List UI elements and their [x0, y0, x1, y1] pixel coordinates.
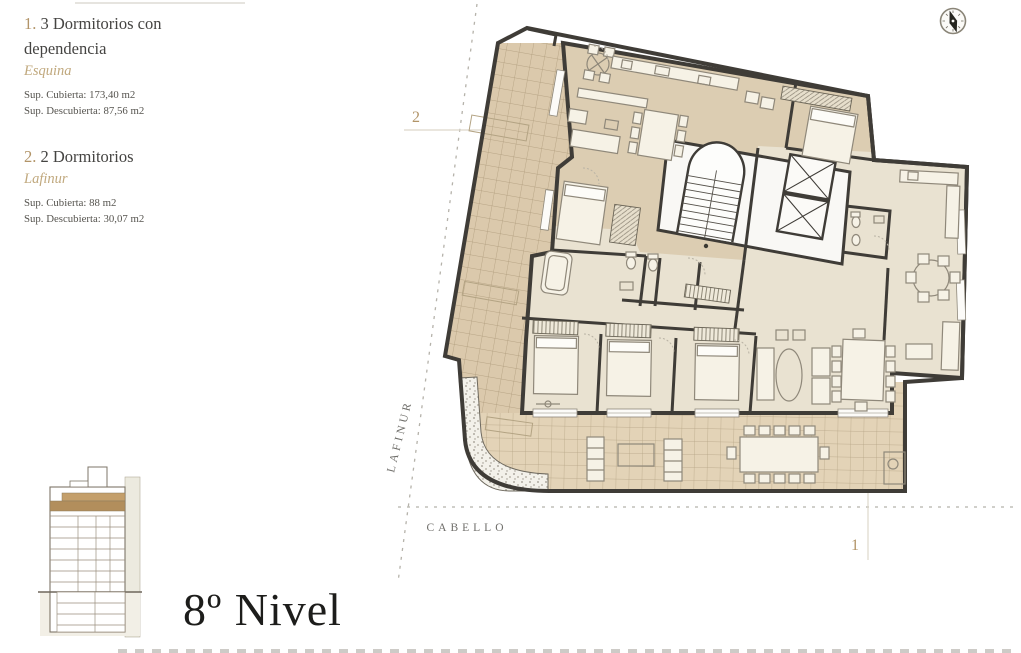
level-title: 8º Nivel	[183, 583, 342, 636]
elevation-rooftop	[88, 467, 107, 487]
bathtub	[540, 250, 573, 295]
entry-point	[704, 244, 708, 248]
bed-b	[607, 340, 652, 397]
floorplan-drawing: LAFINUR CABELLO 2 1	[0, 0, 1021, 653]
bed-a	[533, 336, 578, 395]
elevation-base	[57, 592, 125, 632]
elevation-rooftop-2	[70, 481, 88, 487]
marker-unit-1: 1	[851, 537, 859, 554]
building-plan	[445, 28, 967, 491]
toilet-b	[648, 254, 658, 271]
floorplan-page: 1. 3 Dormitorios con dependencia Esquina…	[0, 0, 1021, 653]
street-label-cabello: CABELLO	[426, 522, 507, 534]
shelves-living	[812, 348, 830, 404]
marker-unit-2: 2	[412, 109, 420, 126]
north-compass-icon	[941, 9, 966, 34]
level-highlight-upper	[62, 493, 125, 501]
sofa-living	[757, 348, 774, 400]
toilet-a	[626, 252, 636, 269]
bed-c	[695, 344, 740, 401]
bed-unit2-second	[802, 106, 858, 164]
street-label-lafinur: LAFINUR	[385, 399, 415, 474]
building-elevation-key	[38, 467, 142, 637]
level-highlight	[50, 501, 125, 511]
cropped-content-dashes	[118, 649, 1014, 653]
bed-unit2-master	[556, 181, 608, 245]
